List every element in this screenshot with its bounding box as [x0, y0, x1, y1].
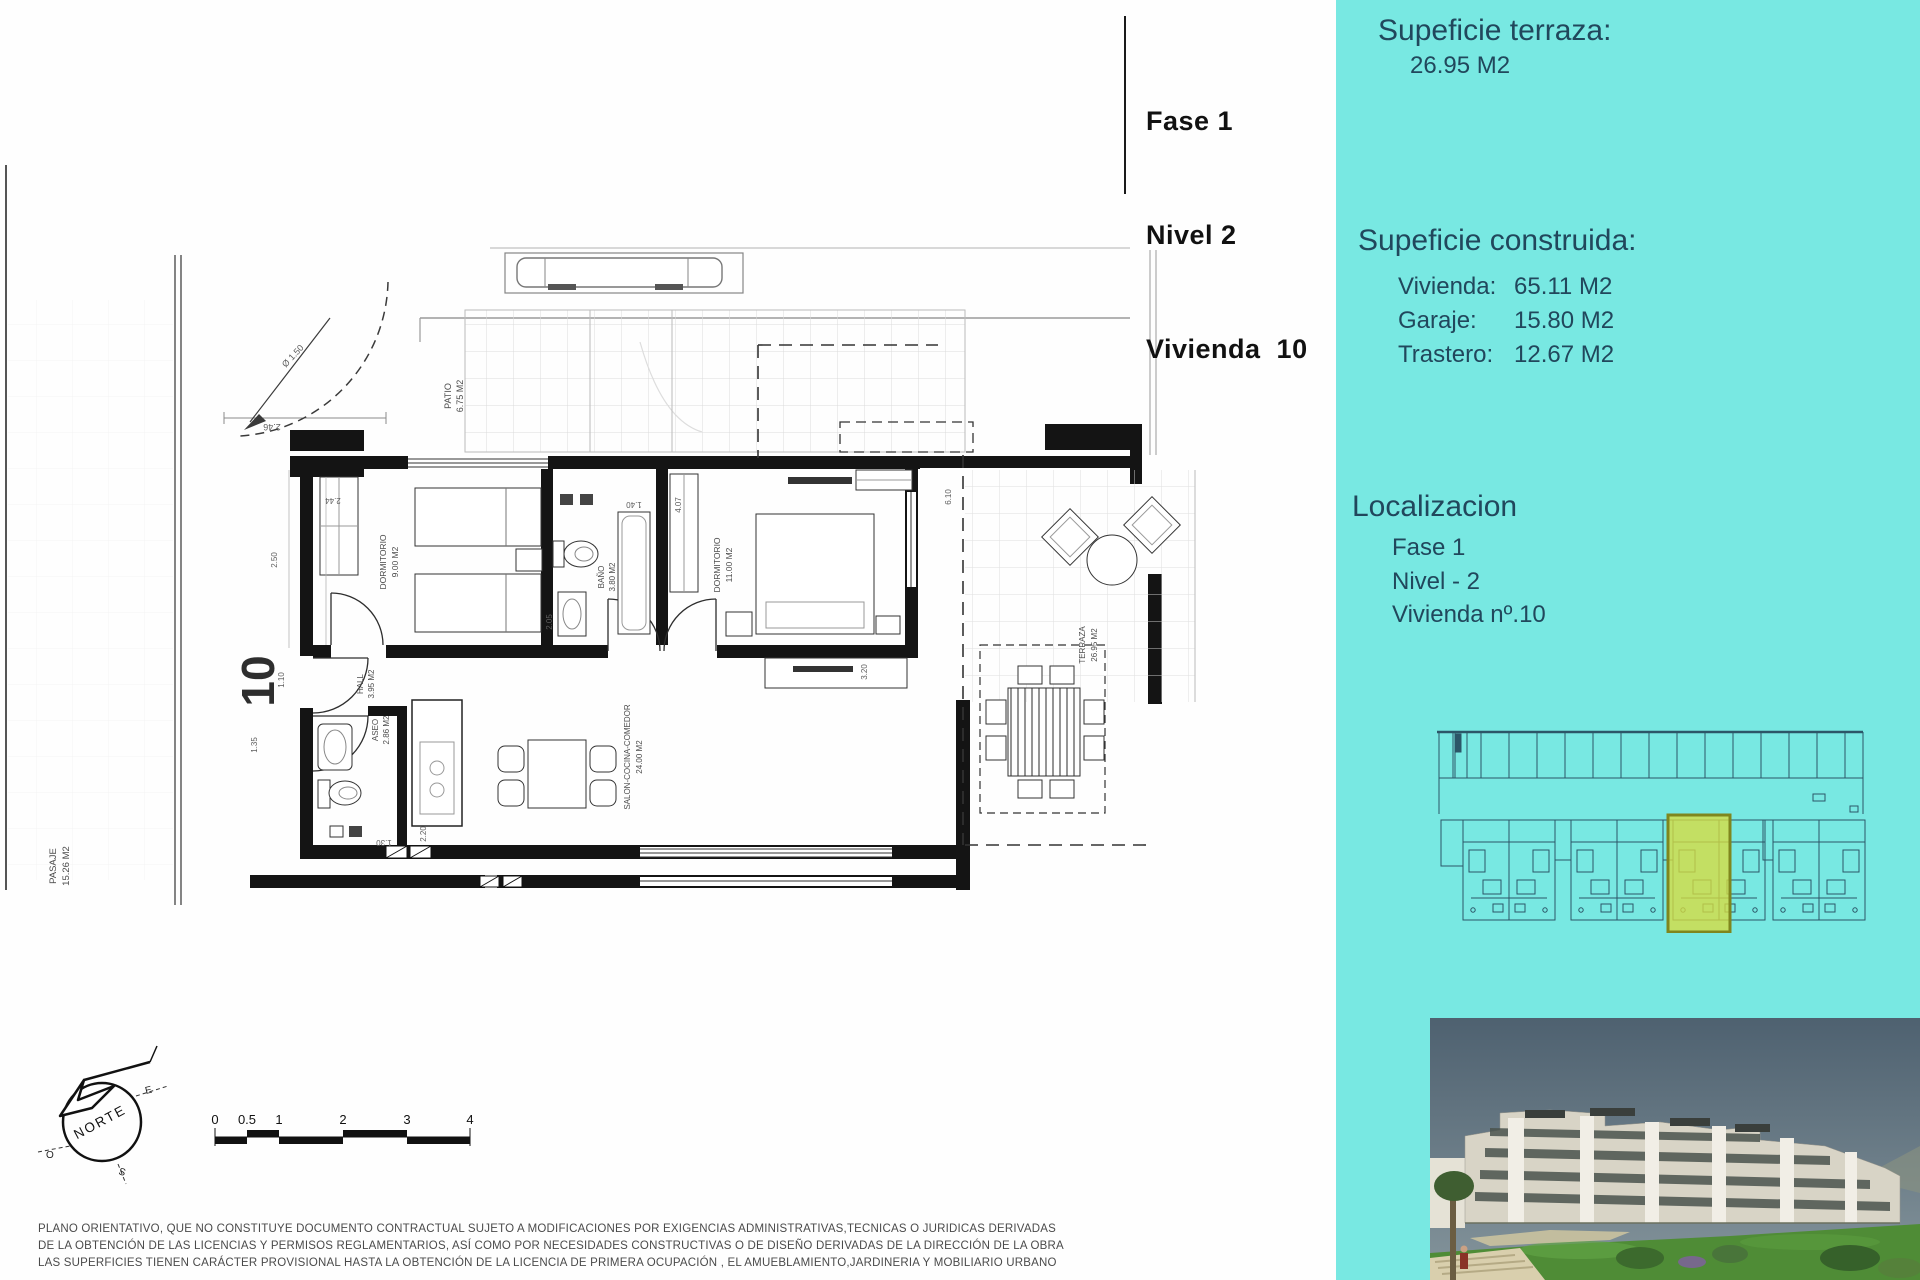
dimension-140: 1.40 [626, 500, 642, 509]
dimension-250: 2.50 [270, 552, 279, 568]
compass-south: S [117, 1166, 127, 1179]
room-area-salon: 24.00 M2 [635, 740, 644, 774]
localization-heading: Localizacion [1352, 490, 1517, 524]
disclaimer: PLANO ORIENTATIVO, QUE NO CONSTITUYE DOC… [38, 1221, 1298, 1272]
built-row-vivienda: Vivienda: 65.11 M2 [1398, 270, 1614, 304]
room-label-hall: HALL [356, 673, 365, 694]
localization-dwelling: Vivienda nº.10 [1392, 601, 1546, 629]
aseo-fixtures [318, 724, 362, 837]
localization-phase: Fase 1 [1392, 534, 1465, 562]
bathroom-fixtures [553, 494, 650, 636]
room-area-dormitorio2: 11.00 M2 [724, 547, 734, 582]
phase-label: Fase 1 [1146, 102, 1308, 140]
highlighted-unit [1668, 815, 1730, 932]
room-area-dormitorio1: 9.00 M2 [390, 546, 400, 577]
room-area-hall: 3.95 M2 [367, 669, 376, 698]
disclaimer-line-2: DE LA OBTENCIÓN DE LAS LICENCIAS Y PERMI… [38, 1238, 1298, 1255]
scale-tick-4: 4 [466, 1112, 473, 1127]
dimension-radius: Ø 1.50 [280, 343, 306, 370]
info-sidebar: Supeficie terraza: 26.95 M2 Supeficie co… [1336, 0, 1920, 1280]
room-label-patio: PATIO [443, 383, 453, 409]
room-label-pasaje: PASAJE [48, 848, 59, 884]
dimension-246: 2.46 [224, 412, 386, 432]
level-label: Nivel 2 [1146, 216, 1308, 254]
room-label-terraza: TERRAZA [1078, 626, 1087, 664]
title-block: Fase 1 Nivel 2 Vivienda 10 [1146, 26, 1308, 444]
dimension-244: 2.44 [325, 496, 341, 505]
kitchen-counter [412, 700, 462, 826]
terrace-surface-value: 26.95 M2 [1410, 52, 1510, 80]
scale-tick-2: 2 [339, 1112, 346, 1127]
building-photo [1430, 1018, 1920, 1280]
room-area-terraza: 26.95 M2 [1090, 628, 1099, 662]
room-label-aseo: ASEO [371, 719, 380, 741]
disclaimer-line-1: PLANO ORIENTATIVO, QUE NO CONSTITUYE DOC… [38, 1221, 1298, 1238]
patio: PATIO 6.75 M2 [443, 310, 965, 452]
scale-tick-3: 3 [403, 1112, 410, 1127]
bedroom1-furniture [320, 477, 542, 632]
unit-number: 10 [232, 655, 284, 706]
dining-set [498, 740, 616, 808]
room-area-patio: 6.75 M2 [455, 380, 465, 413]
built-row-trastero: Trastero: 12.67 M2 [1398, 338, 1614, 372]
dimension-220: 2.20 [419, 826, 428, 842]
pasaje-strip: PASAJE 15.26 M2 [6, 165, 181, 905]
scale-tick-1: 1 [275, 1112, 282, 1127]
site-plan-map [1425, 718, 1870, 933]
room-label-bano: BAÑO [597, 566, 606, 589]
disclaimer-line-3: LAS SUPERFICIES TIENEN CARÁCTER PROVISIO… [38, 1255, 1298, 1272]
sofa [765, 658, 907, 688]
room-label-salon: SALON-COCINA-COMEDOR [623, 704, 632, 810]
title-divider [1124, 16, 1126, 194]
built-row-garaje: Garaje: 15.80 M2 [1398, 304, 1614, 338]
room-label-dormitorio2: DORMITORIO [712, 537, 722, 592]
room-area-pasaje: 15.26 M2 [61, 846, 72, 886]
scale-tick-0: 0 [211, 1112, 218, 1127]
dimension-610: 6.10 [944, 489, 953, 505]
dimension-205: 2.05 [545, 614, 554, 630]
localization-level: Nivel - 2 [1392, 568, 1480, 596]
dimension-320: 3.20 [860, 664, 869, 680]
turning-radius-arc: Ø 1.50 [240, 282, 388, 436]
dwelling-label: Vivienda 10 [1146, 330, 1308, 368]
compass-west: O [46, 1150, 54, 1161]
dimension-130: 1.30 [376, 838, 392, 847]
room-area-bano: 3.80 M2 [608, 562, 617, 591]
parked-car [505, 253, 743, 293]
dimension-407: 4.07 [674, 497, 683, 513]
room-area-aseo: 2.86 M2 [382, 715, 391, 744]
bedroom2-furniture [670, 470, 912, 636]
north-compass: NORTE E O S [38, 1046, 168, 1184]
built-surface-rows: Vivienda: 65.11 M2 Garaje: 15.80 M2 Tras… [1398, 270, 1614, 372]
scale-bar: 0 0.5 1 2 3 4 [211, 1112, 473, 1146]
dimension-135: 1.35 [250, 737, 259, 753]
room-label-dormitorio1: DORMITORIO [378, 534, 388, 589]
terrace-surface-heading: Supeficie terraza: [1378, 14, 1611, 48]
built-surface-heading: Supeficie construida: [1358, 224, 1637, 258]
brochure-page: PASAJE 15.26 M2 PATIO 6.75 M2 [0, 0, 1920, 1280]
scale-tick-05: 0.5 [238, 1112, 256, 1127]
